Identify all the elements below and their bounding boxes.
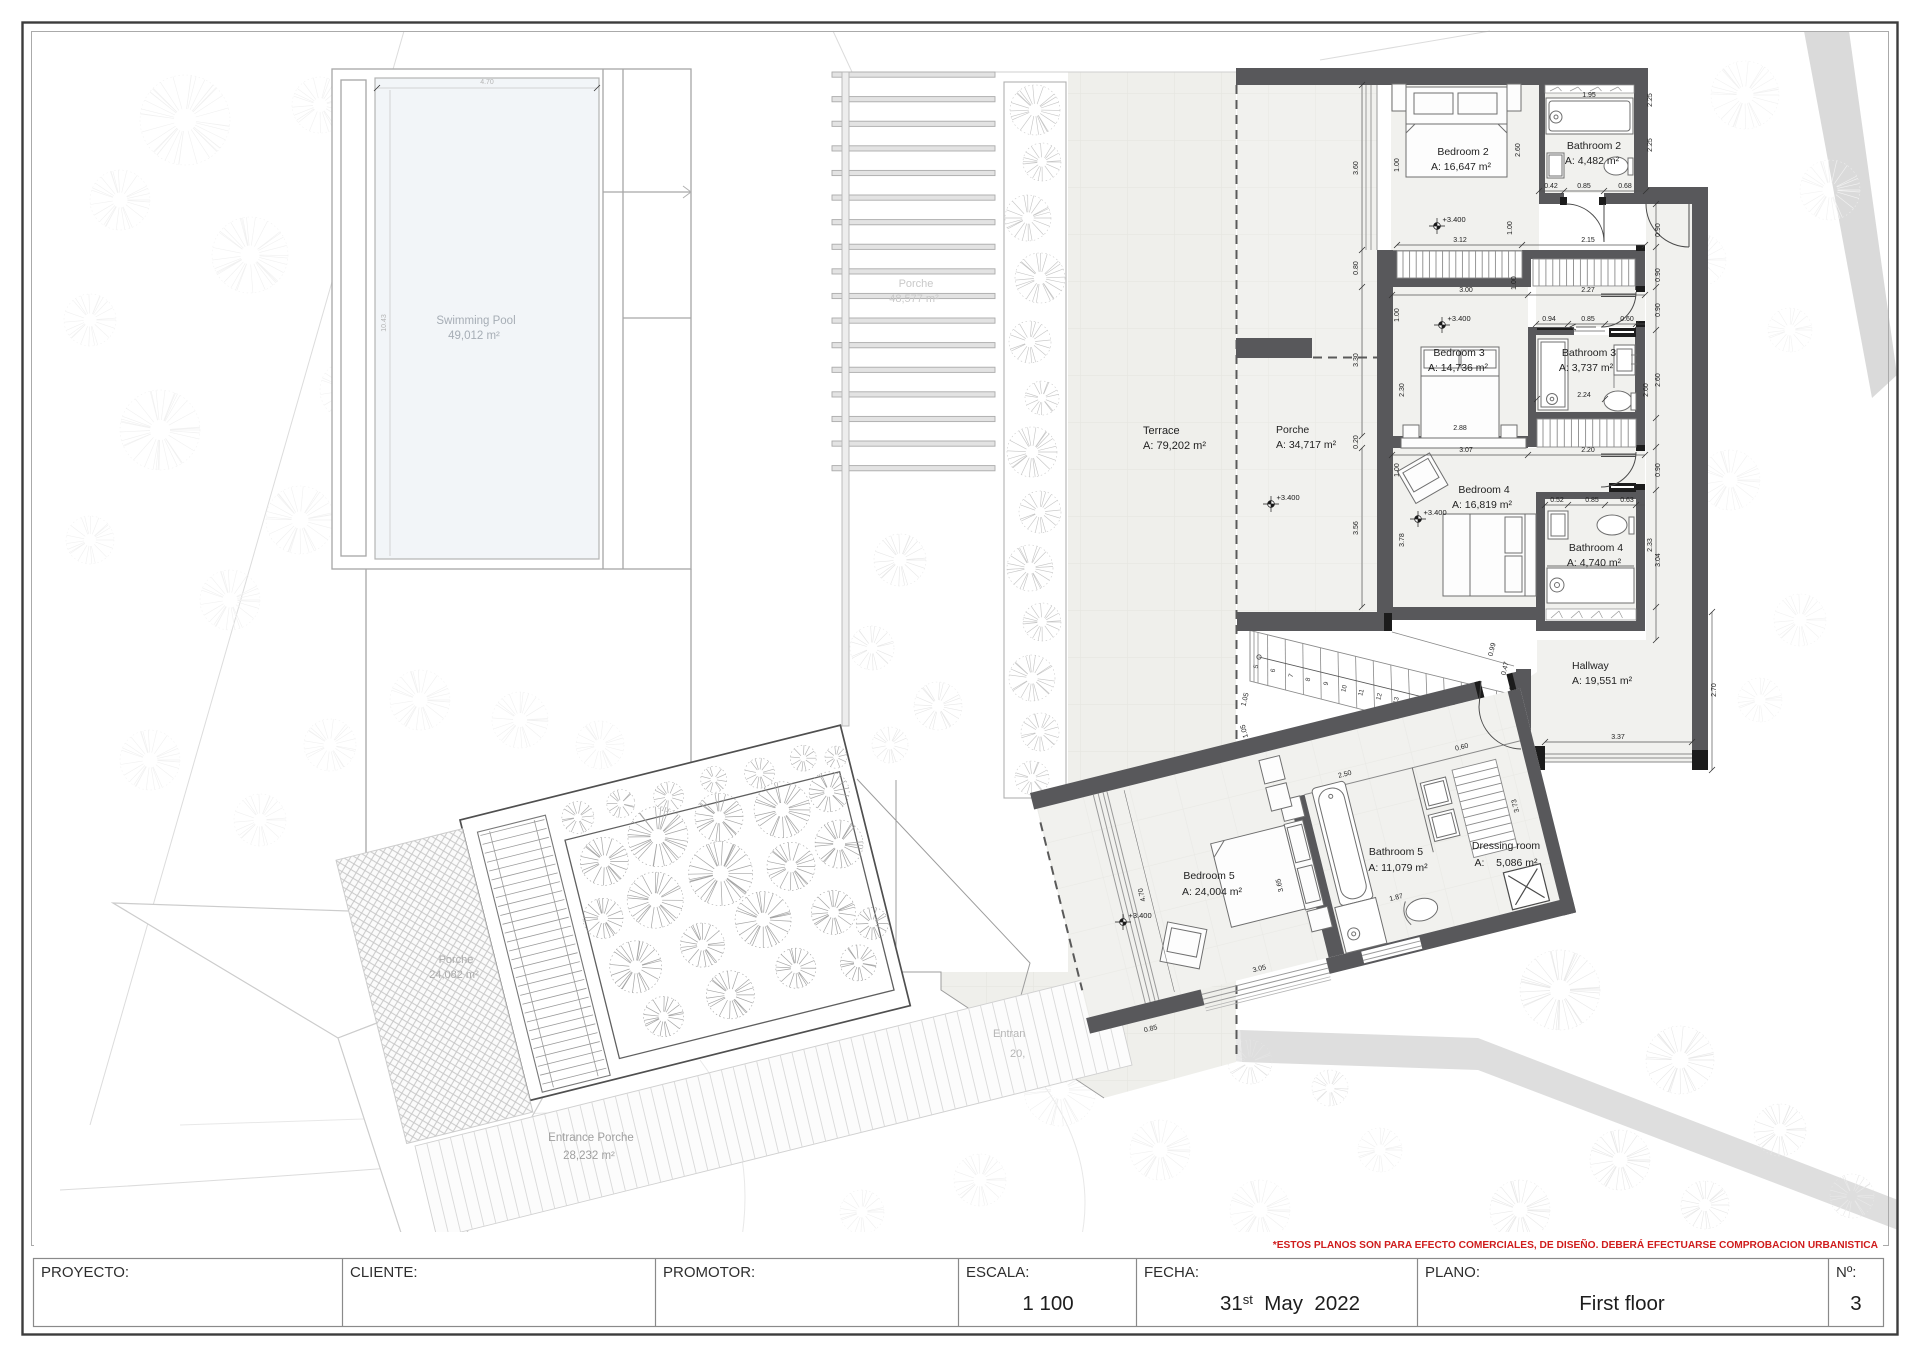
svg-text:0.90: 0.90 (1655, 303, 1662, 317)
svg-text:3.07: 3.07 (1459, 447, 1473, 454)
svg-text:4.70: 4.70 (480, 79, 494, 86)
svg-text:24,082 m²: 24,082 m² (429, 969, 479, 981)
svg-text:Bathroom 4: Bathroom 4 (1569, 542, 1623, 554)
svg-text:3.56: 3.56 (1353, 521, 1360, 535)
svg-text:A: 34,717 m²: A: 34,717 m² (1276, 439, 1337, 451)
svg-text:Bedroom 5: Bedroom 5 (1183, 870, 1235, 882)
svg-text:0.85: 0.85 (1585, 497, 1599, 504)
svg-text:1.00: 1.00 (1511, 276, 1518, 290)
svg-text:1.00: 1.00 (1507, 221, 1514, 235)
svg-text:*ESTOS PLANOS SON PARA EFECTO: *ESTOS PLANOS SON PARA EFECTO COMERCIALE… (1273, 1238, 1879, 1251)
svg-text:31st May 2022: 31st May 2022 (1220, 1292, 1360, 1315)
svg-text:0.90: 0.90 (1655, 463, 1662, 477)
svg-text:2.15: 2.15 (1581, 237, 1595, 244)
svg-text:3.04: 3.04 (1655, 553, 1662, 567)
svg-text:2.60: 2.60 (1643, 383, 1650, 397)
svg-text:2.33: 2.33 (1647, 538, 1654, 552)
svg-text:First floor: First floor (1579, 1292, 1665, 1315)
svg-text:A: 24,004 m²: A: 24,004 m² (1182, 886, 1243, 898)
svg-text:Terrace: Terrace (1143, 425, 1180, 437)
svg-text:A: 5,086 m²: A: 5,086 m² (1474, 857, 1538, 869)
svg-text:PROMOTOR:: PROMOTOR: (663, 1264, 755, 1281)
svg-text:20,: 20, (1010, 1048, 1025, 1060)
svg-text:ESCALA:: ESCALA: (966, 1264, 1029, 1281)
svg-text:+3.400: +3.400 (1443, 215, 1466, 224)
svg-text:2.24: 2.24 (1577, 392, 1591, 399)
svg-text:0.20: 0.20 (1353, 435, 1360, 449)
svg-text:PLANO:: PLANO: (1425, 1264, 1480, 1281)
svg-text:3.60: 3.60 (1353, 161, 1360, 175)
svg-text:Bathroom 5: Bathroom 5 (1369, 846, 1423, 858)
svg-text:Entrance Porche: Entrance Porche (548, 1132, 634, 1144)
svg-text:1 100: 1 100 (1022, 1292, 1073, 1315)
svg-text:1.95: 1.95 (1582, 92, 1596, 99)
svg-text:48,577 m²: 48,577 m² (889, 293, 939, 305)
svg-text:2.25: 2.25 (1647, 93, 1654, 107)
svg-text:2.27: 2.27 (1581, 287, 1595, 294)
svg-text:Hallway: Hallway (1572, 660, 1610, 672)
svg-text:2.60: 2.60 (1515, 143, 1522, 157)
svg-text:1.00: 1.00 (1394, 463, 1401, 477)
svg-text:Nº:: Nº: (1836, 1264, 1856, 1281)
svg-text:2.70: 2.70 (1711, 683, 1718, 697)
svg-text:0.63: 0.63 (1620, 497, 1634, 504)
svg-text:2.30: 2.30 (1399, 383, 1406, 397)
svg-text:Bedroom 4: Bedroom 4 (1458, 484, 1510, 496)
svg-text:Porche: Porche (899, 278, 934, 290)
svg-text:A: 79,202 m²: A: 79,202 m² (1143, 440, 1206, 452)
svg-text:+3.400: +3.400 (1277, 493, 1300, 502)
svg-text:2.60: 2.60 (1655, 373, 1662, 387)
svg-text:3.12: 3.12 (1453, 237, 1467, 244)
svg-text:+3.400: +3.400 (1129, 911, 1152, 920)
svg-text:+3.400: +3.400 (1424, 508, 1447, 517)
svg-text:Swimming Pool: Swimming Pool (436, 315, 515, 327)
svg-text:Bathroom 3: Bathroom 3 (1562, 347, 1616, 359)
svg-text:1.00: 1.00 (1394, 308, 1401, 322)
svg-text:Bedroom 2: Bedroom 2 (1437, 146, 1489, 158)
svg-text:A: 3,737 m²: A: 3,737 m² (1559, 362, 1614, 374)
svg-text:+3.400: +3.400 (1448, 314, 1471, 323)
svg-text:A: 14,736 m²: A: 14,736 m² (1428, 362, 1489, 374)
svg-text:0.42: 0.42 (1544, 183, 1558, 190)
svg-text:1.00: 1.00 (1394, 158, 1401, 172)
svg-text:0.68: 0.68 (1618, 183, 1632, 190)
svg-text:A: 11,079 m²: A: 11,079 m² (1368, 862, 1428, 874)
svg-text:3.78: 3.78 (1399, 533, 1406, 547)
svg-text:Dressing room: Dressing room (1472, 840, 1541, 852)
svg-text:CLIENTE:: CLIENTE: (350, 1264, 418, 1281)
svg-text:Entran: Entran (993, 1028, 1025, 1040)
svg-text:0.60: 0.60 (1620, 316, 1634, 323)
svg-text:0.85: 0.85 (1577, 183, 1591, 190)
svg-text:10.43: 10.43 (381, 314, 388, 332)
svg-text:A: 4,740 m²: A: 4,740 m² (1567, 557, 1622, 569)
svg-text:FECHA:: FECHA: (1144, 1264, 1199, 1281)
svg-text:A: 16,647 m²: A: 16,647 m² (1431, 161, 1492, 173)
svg-text:Porche: Porche (439, 954, 474, 966)
svg-text:0.90: 0.90 (1655, 268, 1662, 282)
svg-text:0.94: 0.94 (1542, 316, 1556, 323)
svg-text:A: 4,482 m²: A: 4,482 m² (1565, 155, 1620, 167)
svg-text:PROYECTO:: PROYECTO: (41, 1264, 129, 1281)
svg-text:0.90: 0.90 (1655, 223, 1662, 237)
svg-text:A: 16,819 m²: A: 16,819 m² (1452, 499, 1513, 511)
svg-text:3.37: 3.37 (1611, 734, 1625, 741)
svg-text:2.20: 2.20 (1581, 447, 1595, 454)
svg-text:0.80: 0.80 (1353, 261, 1360, 275)
svg-text:A: 19,551 m²: A: 19,551 m² (1572, 675, 1633, 687)
svg-text:Bathroom 2: Bathroom 2 (1567, 140, 1621, 152)
svg-text:2.88: 2.88 (1453, 425, 1467, 432)
svg-text:0.52: 0.52 (1550, 497, 1564, 504)
svg-text:0.85: 0.85 (1581, 316, 1595, 323)
svg-text:Porche: Porche (1276, 424, 1309, 436)
svg-text:28,232 m²: 28,232 m² (563, 1150, 615, 1162)
svg-text:2.25: 2.25 (1647, 138, 1654, 152)
svg-text:3.00: 3.00 (1459, 287, 1473, 294)
svg-text:Bedroom 3: Bedroom 3 (1433, 347, 1485, 359)
svg-text:49,012 m²: 49,012 m² (448, 330, 500, 342)
svg-text:3.30: 3.30 (1353, 353, 1360, 367)
svg-text:3: 3 (1850, 1292, 1861, 1315)
